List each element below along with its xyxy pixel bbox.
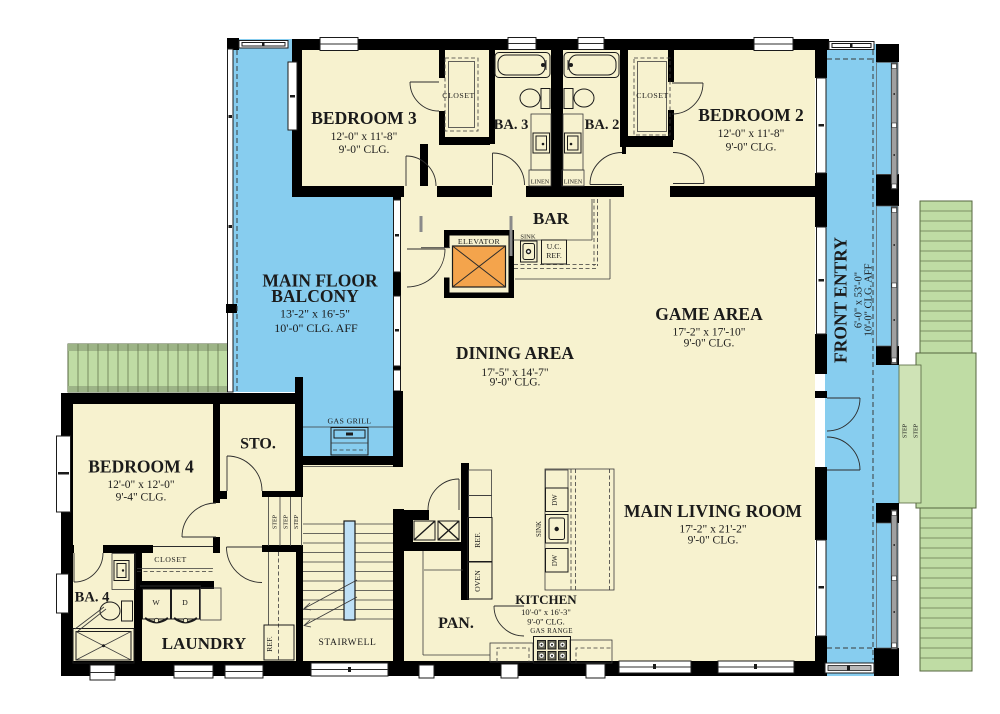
svg-text:REF.: REF. xyxy=(265,636,274,652)
svg-text:STEP: STEP xyxy=(903,423,909,438)
svg-text:STAIRWELL: STAIRWELL xyxy=(319,638,377,648)
svg-text:13'-2" x 16'-5": 13'-2" x 16'-5" xyxy=(280,307,350,321)
svg-text:OVEN: OVEN xyxy=(473,570,482,592)
svg-text:10'-0" CLG. AFF: 10'-0" CLG. AFF xyxy=(864,263,875,336)
svg-text:9'-4" CLG.: 9'-4" CLG. xyxy=(116,492,167,504)
svg-text:BA. 4: BA. 4 xyxy=(75,590,110,606)
svg-text:CLOSET: CLOSET xyxy=(442,91,474,100)
svg-text:LINEN: LINEN xyxy=(531,179,550,186)
svg-text:DW: DW xyxy=(552,554,559,566)
svg-text:BEDROOM 4: BEDROOM 4 xyxy=(88,457,194,477)
svg-text:DINING AREA: DINING AREA xyxy=(456,343,575,363)
svg-text:U.C.: U.C. xyxy=(547,242,562,251)
svg-text:9'-0" CLG.: 9'-0" CLG. xyxy=(490,377,541,389)
svg-text:BA. 2: BA. 2 xyxy=(585,117,620,133)
svg-text:GAME AREA: GAME AREA xyxy=(655,304,763,324)
svg-text:REF.: REF. xyxy=(546,251,562,260)
svg-text:9'-0" CLG.: 9'-0" CLG. xyxy=(688,535,739,547)
svg-text:CLOSET: CLOSET xyxy=(154,555,186,564)
svg-text:STEP: STEP xyxy=(273,514,279,529)
svg-text:9'-0" CLG.: 9'-0" CLG. xyxy=(339,144,390,156)
svg-text:CLOSET: CLOSET xyxy=(636,91,668,100)
svg-text:12'-0" x 11'-8": 12'-0" x 11'-8" xyxy=(331,131,398,143)
svg-text:9'-0" CLG.: 9'-0" CLG. xyxy=(527,617,565,627)
svg-text:SINK: SINK xyxy=(520,234,535,241)
svg-text:D: D xyxy=(182,598,188,607)
svg-text:9'-0" CLG.: 9'-0" CLG. xyxy=(684,338,735,350)
svg-text:STEP: STEP xyxy=(294,514,300,529)
svg-text:12'-0" x 11'-8": 12'-0" x 11'-8" xyxy=(718,128,785,140)
svg-text:W: W xyxy=(152,598,160,607)
svg-text:PAN.: PAN. xyxy=(438,615,474,632)
svg-text:STEP: STEP xyxy=(284,514,290,529)
svg-text:STO.: STO. xyxy=(240,436,276,453)
svg-text:FRONT ENTRY: FRONT ENTRY xyxy=(831,237,851,363)
svg-text:BAR: BAR xyxy=(533,209,570,228)
svg-text:REF.: REF. xyxy=(473,532,482,548)
svg-text:BEDROOM 3: BEDROOM 3 xyxy=(311,108,417,128)
svg-text:BALCONY: BALCONY xyxy=(271,286,359,306)
svg-text:MAIN LIVING ROOM: MAIN LIVING ROOM xyxy=(624,501,802,521)
svg-text:ELEVATOR: ELEVATOR xyxy=(458,237,501,246)
svg-text:LAUNDRY: LAUNDRY xyxy=(162,634,246,653)
svg-text:SINK: SINK xyxy=(536,521,543,537)
svg-text:LINEN: LINEN xyxy=(564,179,583,186)
svg-text:9'-0" CLG.: 9'-0" CLG. xyxy=(726,142,777,154)
svg-text:DW: DW xyxy=(552,494,559,506)
svg-text:12'-0" x 12'-0": 12'-0" x 12'-0" xyxy=(107,479,174,491)
svg-text:10'-0" CLG. AFF: 10'-0" CLG. AFF xyxy=(274,321,358,335)
svg-text:STEP: STEP xyxy=(914,423,920,438)
svg-text:KITCHEN: KITCHEN xyxy=(515,592,577,607)
svg-text:GAS RANGE: GAS RANGE xyxy=(530,627,573,635)
svg-text:BEDROOM 2: BEDROOM 2 xyxy=(698,105,804,125)
svg-text:BA. 3: BA. 3 xyxy=(494,117,529,133)
svg-text:10'-0" x 16'-3": 10'-0" x 16'-3" xyxy=(521,607,571,617)
svg-text:GAS GRILL: GAS GRILL xyxy=(327,417,371,426)
